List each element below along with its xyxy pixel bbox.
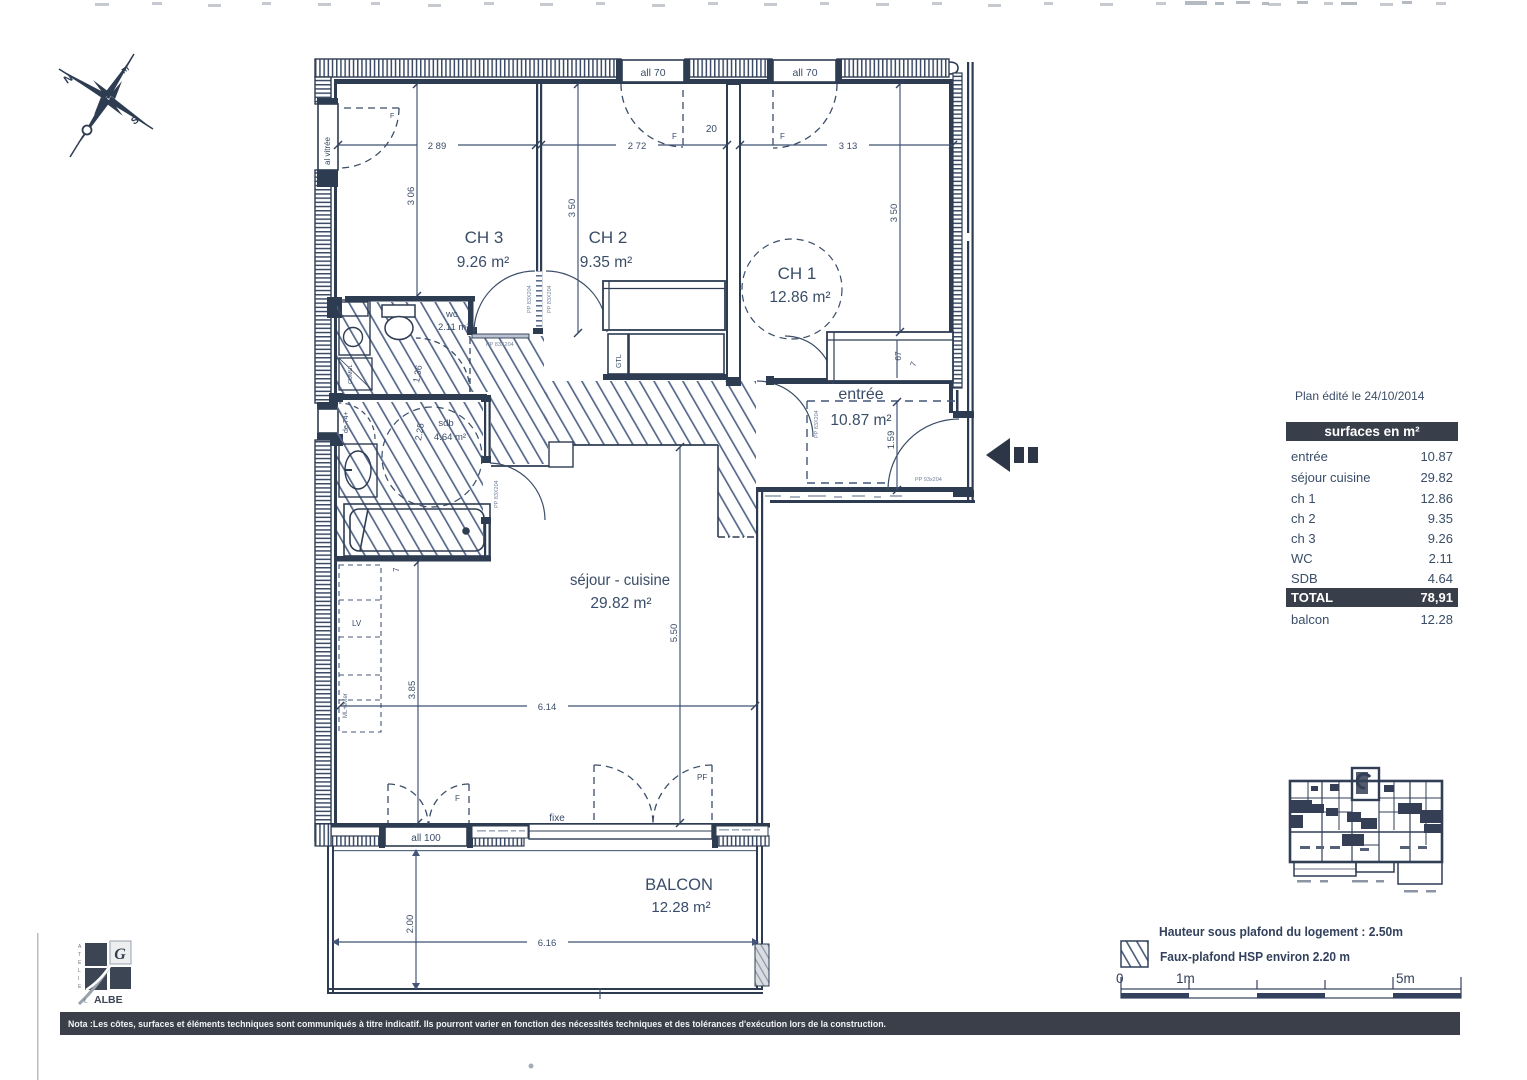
svg-text:9.26: 9.26 (1428, 531, 1453, 546)
svg-text:CH 2: CH 2 (589, 228, 628, 247)
svg-text:6.14: 6.14 (538, 702, 557, 713)
svg-text:9.35 m²: 9.35 m² (580, 254, 633, 271)
svg-text:20: 20 (706, 124, 718, 135)
svg-text:surfaces en m²: surfaces en m² (1324, 424, 1420, 439)
svg-text:PP 83X204: PP 83X204 (494, 480, 500, 508)
svg-text:1m: 1m (1176, 971, 1195, 986)
svg-text:t.: t. (84, 998, 88, 1005)
svg-text:3 50: 3 50 (567, 199, 578, 218)
svg-text:GTL: GTL (616, 354, 623, 368)
svg-text:PF: PF (697, 773, 707, 782)
svg-text:2 89: 2 89 (428, 141, 447, 152)
svg-text:5.50: 5.50 (669, 624, 680, 643)
svg-text:10.87: 10.87 (1420, 449, 1453, 464)
svg-text:PP 83X204: PP 83X204 (814, 410, 820, 438)
svg-text:ch 3: ch 3 (1291, 531, 1316, 546)
svg-text:SDB: SDB (1291, 571, 1318, 586)
svg-text:5m: 5m (1396, 971, 1415, 986)
svg-text:1.59: 1.59 (886, 431, 897, 450)
svg-text:7: 7 (392, 567, 401, 572)
svg-text:séjour cuisine: séjour cuisine (1291, 470, 1371, 485)
svg-text:F: F (672, 132, 677, 141)
svg-text:Faux-plafond HSP environ 2.20: Faux-plafond HSP environ 2.20 m (1160, 949, 1350, 964)
svg-text:2.11: 2.11 (1429, 551, 1453, 566)
svg-text:67: 67 (893, 351, 903, 361)
svg-text:F: F (390, 113, 394, 120)
svg-text:Nota :Les côtes, surfaces et é: Nota :Les côtes, surfaces et éléments te… (68, 1019, 886, 1029)
svg-text:entrée: entrée (838, 386, 883, 403)
svg-text:12.86 m²: 12.86 m² (769, 289, 830, 306)
svg-text:F: F (455, 794, 460, 803)
svg-text:CH 3: CH 3 (465, 228, 504, 247)
svg-text:all 70: all 70 (640, 67, 665, 79)
svg-text:al vitrée: al vitrée (323, 136, 332, 165)
svg-text:CUMUL: CUMUL (348, 364, 354, 384)
svg-text:9.26 m²: 9.26 m² (457, 254, 510, 271)
svg-text:F: F (780, 132, 785, 141)
svg-text:0: 0 (1116, 971, 1124, 986)
svg-text:PP 93x204: PP 93x204 (915, 477, 942, 483)
svg-text:4.64 m²: 4.64 m² (434, 432, 466, 443)
svg-text:3 13: 3 13 (839, 141, 858, 152)
svg-text:ch 2: ch 2 (1291, 511, 1316, 526)
svg-text:séjour - cuisine: séjour - cuisine (570, 572, 670, 589)
svg-text:2.00: 2.00 (405, 915, 416, 934)
svg-text:all 70: all 70 (792, 67, 817, 79)
svg-text:TOTAL: TOTAL (1291, 590, 1333, 605)
svg-text:10.87 m²: 10.87 m² (830, 412, 891, 429)
svg-text:12.28: 12.28 (1420, 612, 1453, 627)
svg-text:wc: wc (445, 309, 458, 320)
svg-text:entrée: entrée (1291, 449, 1328, 464)
svg-text:9.35: 9.35 (1428, 511, 1453, 526)
svg-text:29.82: 29.82 (1420, 470, 1453, 485)
svg-text:ALBE: ALBE (94, 994, 123, 1006)
svg-text:L: L (78, 968, 81, 974)
svg-text:12.86: 12.86 (1420, 491, 1453, 506)
svg-text:3.85: 3.85 (407, 681, 418, 700)
svg-text:I: I (78, 976, 79, 982)
svg-text:29.82 m²: 29.82 m² (590, 595, 651, 612)
svg-text:T: T (78, 952, 81, 958)
svg-text:Plan édité le 24/10/2014: Plan édité le 24/10/2014 (1295, 389, 1425, 403)
svg-text:2.11 m²: 2.11 m² (438, 322, 470, 333)
svg-text:fixe: fixe (549, 813, 565, 824)
svg-text:CH 1: CH 1 (778, 264, 817, 283)
svg-text:LV: LV (352, 619, 362, 628)
svg-text:12.28 m²: 12.28 m² (651, 899, 710, 916)
svg-text:ch 1: ch 1 (1291, 491, 1316, 506)
svg-text:G: G (114, 946, 126, 963)
svg-text:balcon: balcon (1291, 612, 1329, 627)
svg-text:all 100: all 100 (411, 833, 441, 844)
svg-text:2 72: 2 72 (628, 141, 647, 152)
svg-text:4.64: 4.64 (1428, 571, 1453, 586)
svg-text:78,91: 78,91 (1420, 590, 1453, 605)
svg-text:6.16: 6.16 (538, 938, 557, 949)
svg-text:WC: WC (1291, 551, 1313, 566)
svg-text:sdb: sdb (438, 418, 453, 429)
svg-text:3 50: 3 50 (889, 204, 900, 223)
svg-text:PP 83X204: PP 83X204 (527, 285, 533, 313)
svg-text:Hauteur sous plafond du logeme: Hauteur sous plafond du logement : 2.50m (1159, 924, 1403, 939)
svg-text:3 06: 3 06 (406, 187, 417, 206)
svg-text:PP 83X204: PP 83X204 (486, 342, 514, 348)
svg-text:BALCON: BALCON (645, 876, 713, 894)
svg-text:PP 83X204: PP 83X204 (547, 285, 553, 313)
